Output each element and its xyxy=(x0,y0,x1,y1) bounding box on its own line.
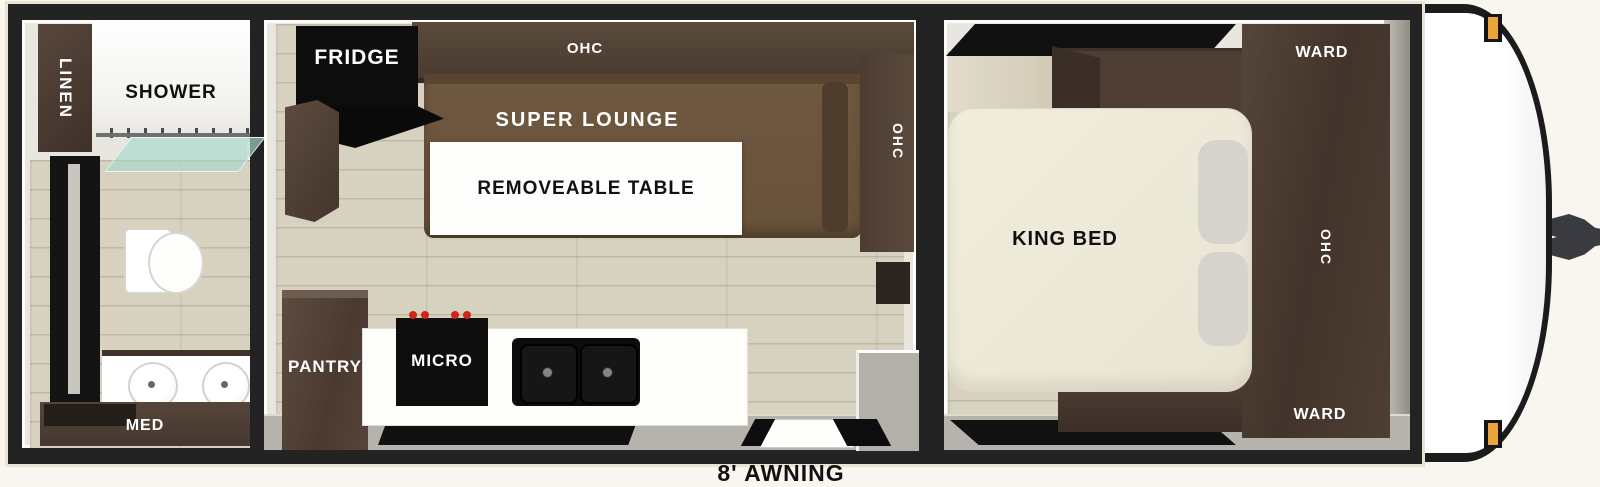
stove-knob-icon xyxy=(409,311,417,319)
headboard-niche xyxy=(1198,140,1248,244)
headboard-shelf xyxy=(948,56,1066,112)
king-bed-label: KING BED xyxy=(1002,226,1128,252)
marker-light-top-icon xyxy=(1488,17,1498,39)
bathroom-rear-window-pane xyxy=(68,164,80,394)
bedroom-ohc-label: OHC xyxy=(1312,220,1340,276)
stove-knob-icon xyxy=(421,311,429,319)
kitchen-window xyxy=(378,424,636,445)
sofa-armrest-pillow xyxy=(822,82,848,232)
rv-floorplan-canvas: LINEN SHOWER MED OHC SUPER LOUNGE FRIDGE… xyxy=(0,0,1600,487)
stove-knob-icon xyxy=(451,311,459,319)
med-label: MED xyxy=(40,408,250,444)
sink-drain-icon xyxy=(602,367,613,378)
super-lounge-label: SUPER LOUNGE xyxy=(490,106,685,134)
shower-label: SHOWER xyxy=(92,80,250,106)
ohc-side-label: OHC xyxy=(884,114,912,170)
ward-top-label: WARD xyxy=(1270,42,1374,64)
ohc-top-label: OHC xyxy=(540,33,630,63)
shower-glass-door xyxy=(104,137,265,172)
sink-drain-icon xyxy=(148,381,155,388)
toilet-bowl xyxy=(148,232,204,294)
headboard-niche xyxy=(1198,252,1248,346)
awning-label: 8' AWNING xyxy=(640,461,922,486)
sink-drain-icon xyxy=(542,367,553,378)
corner-cabinet xyxy=(285,100,339,222)
stove-knob-icon xyxy=(463,311,471,319)
fridge-label: FRIDGE xyxy=(296,44,418,72)
pantry-label: PANTRY xyxy=(282,352,368,382)
removeable-table-label: REMOVEABLE TABLE xyxy=(430,142,742,235)
wall-cabinet-cutout xyxy=(876,262,910,304)
marker-light-bottom-icon xyxy=(1488,423,1498,445)
micro-label: MICRO xyxy=(396,346,488,376)
ward-bottom-label: WARD xyxy=(1268,404,1372,426)
sink-drain-icon xyxy=(221,381,228,388)
linen-label: LINEN xyxy=(38,24,92,152)
